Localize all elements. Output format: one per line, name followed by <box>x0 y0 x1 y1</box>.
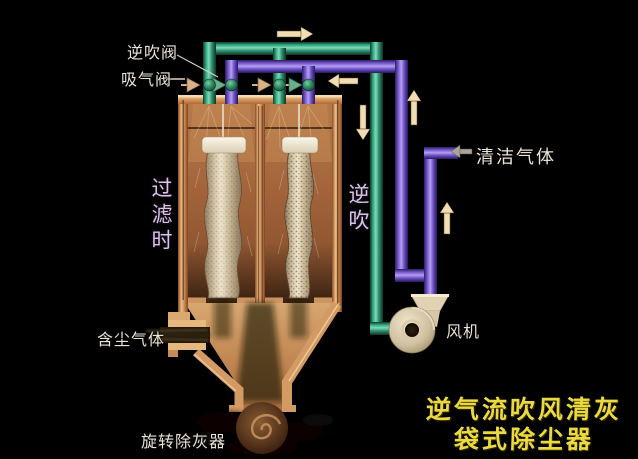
diagram-title-line2: 袋式除尘器 <box>423 420 624 456</box>
neck-flange-right <box>283 405 296 412</box>
valve-ball-3 <box>274 79 286 91</box>
inlet-wall-stub <box>178 300 188 314</box>
top-wall-highlight <box>178 95 342 98</box>
fan-nozzle-lip <box>411 294 449 297</box>
center-divider <box>255 104 265 303</box>
divider-seam-b <box>262 106 263 303</box>
baghouse-vessel <box>178 95 342 312</box>
bag-cap-left <box>202 137 246 153</box>
floor-ledge-1 <box>188 298 206 304</box>
purple-pipe-main-vertical <box>424 147 437 299</box>
purple-pipe-right-vertical <box>395 60 408 282</box>
valve-ball-2 <box>226 79 238 91</box>
purple-pipe-top-horizontal <box>225 60 408 73</box>
valve-ball-4 <box>303 79 315 91</box>
green-pipe-top-horizontal <box>203 42 383 55</box>
inlet-bottom-wall <box>168 343 206 350</box>
label-suction-valve: 吸气阀 <box>121 66 172 90</box>
left-bag-hanger <box>222 104 224 138</box>
valve-ball-1 <box>204 79 216 91</box>
floor-ledge-4 <box>314 298 332 304</box>
fan-inlet-eye <box>405 323 419 337</box>
label-reverse-blow-valve: 逆吹阀 <box>127 39 178 63</box>
green-pipe-drop-2 <box>273 48 286 104</box>
floor-ledge-3 <box>265 298 283 304</box>
neck-flange-left <box>229 405 242 412</box>
label-clean-gas: 清洁气体 <box>476 143 556 169</box>
inlet-foot <box>168 350 178 357</box>
left-wall-seam <box>183 100 184 310</box>
bag-texture-left <box>204 152 241 298</box>
inlet-ledge <box>168 312 190 320</box>
divider-seam-a <box>258 106 259 303</box>
right-wall-seam <box>337 100 338 310</box>
label-reverse-blow-state: 逆吹 <box>343 183 373 235</box>
bag-cap-right <box>282 137 318 153</box>
inlet-top-wall <box>168 320 206 327</box>
bag-filter-diagram: 逆吹阀 吸气阀 清洁气体 含尘气体 风机 旋转除灰器 过滤时 逆吹 逆气流吹风清… <box>0 0 638 459</box>
label-filtering-state: 过滤时 <box>146 177 176 255</box>
label-dusty-gas: 含尘气体 <box>97 326 165 350</box>
label-fan: 风机 <box>446 318 480 342</box>
floor-ledge-2 <box>237 298 255 304</box>
label-rotary-ash-remover: 旋转除灰器 <box>141 428 226 452</box>
